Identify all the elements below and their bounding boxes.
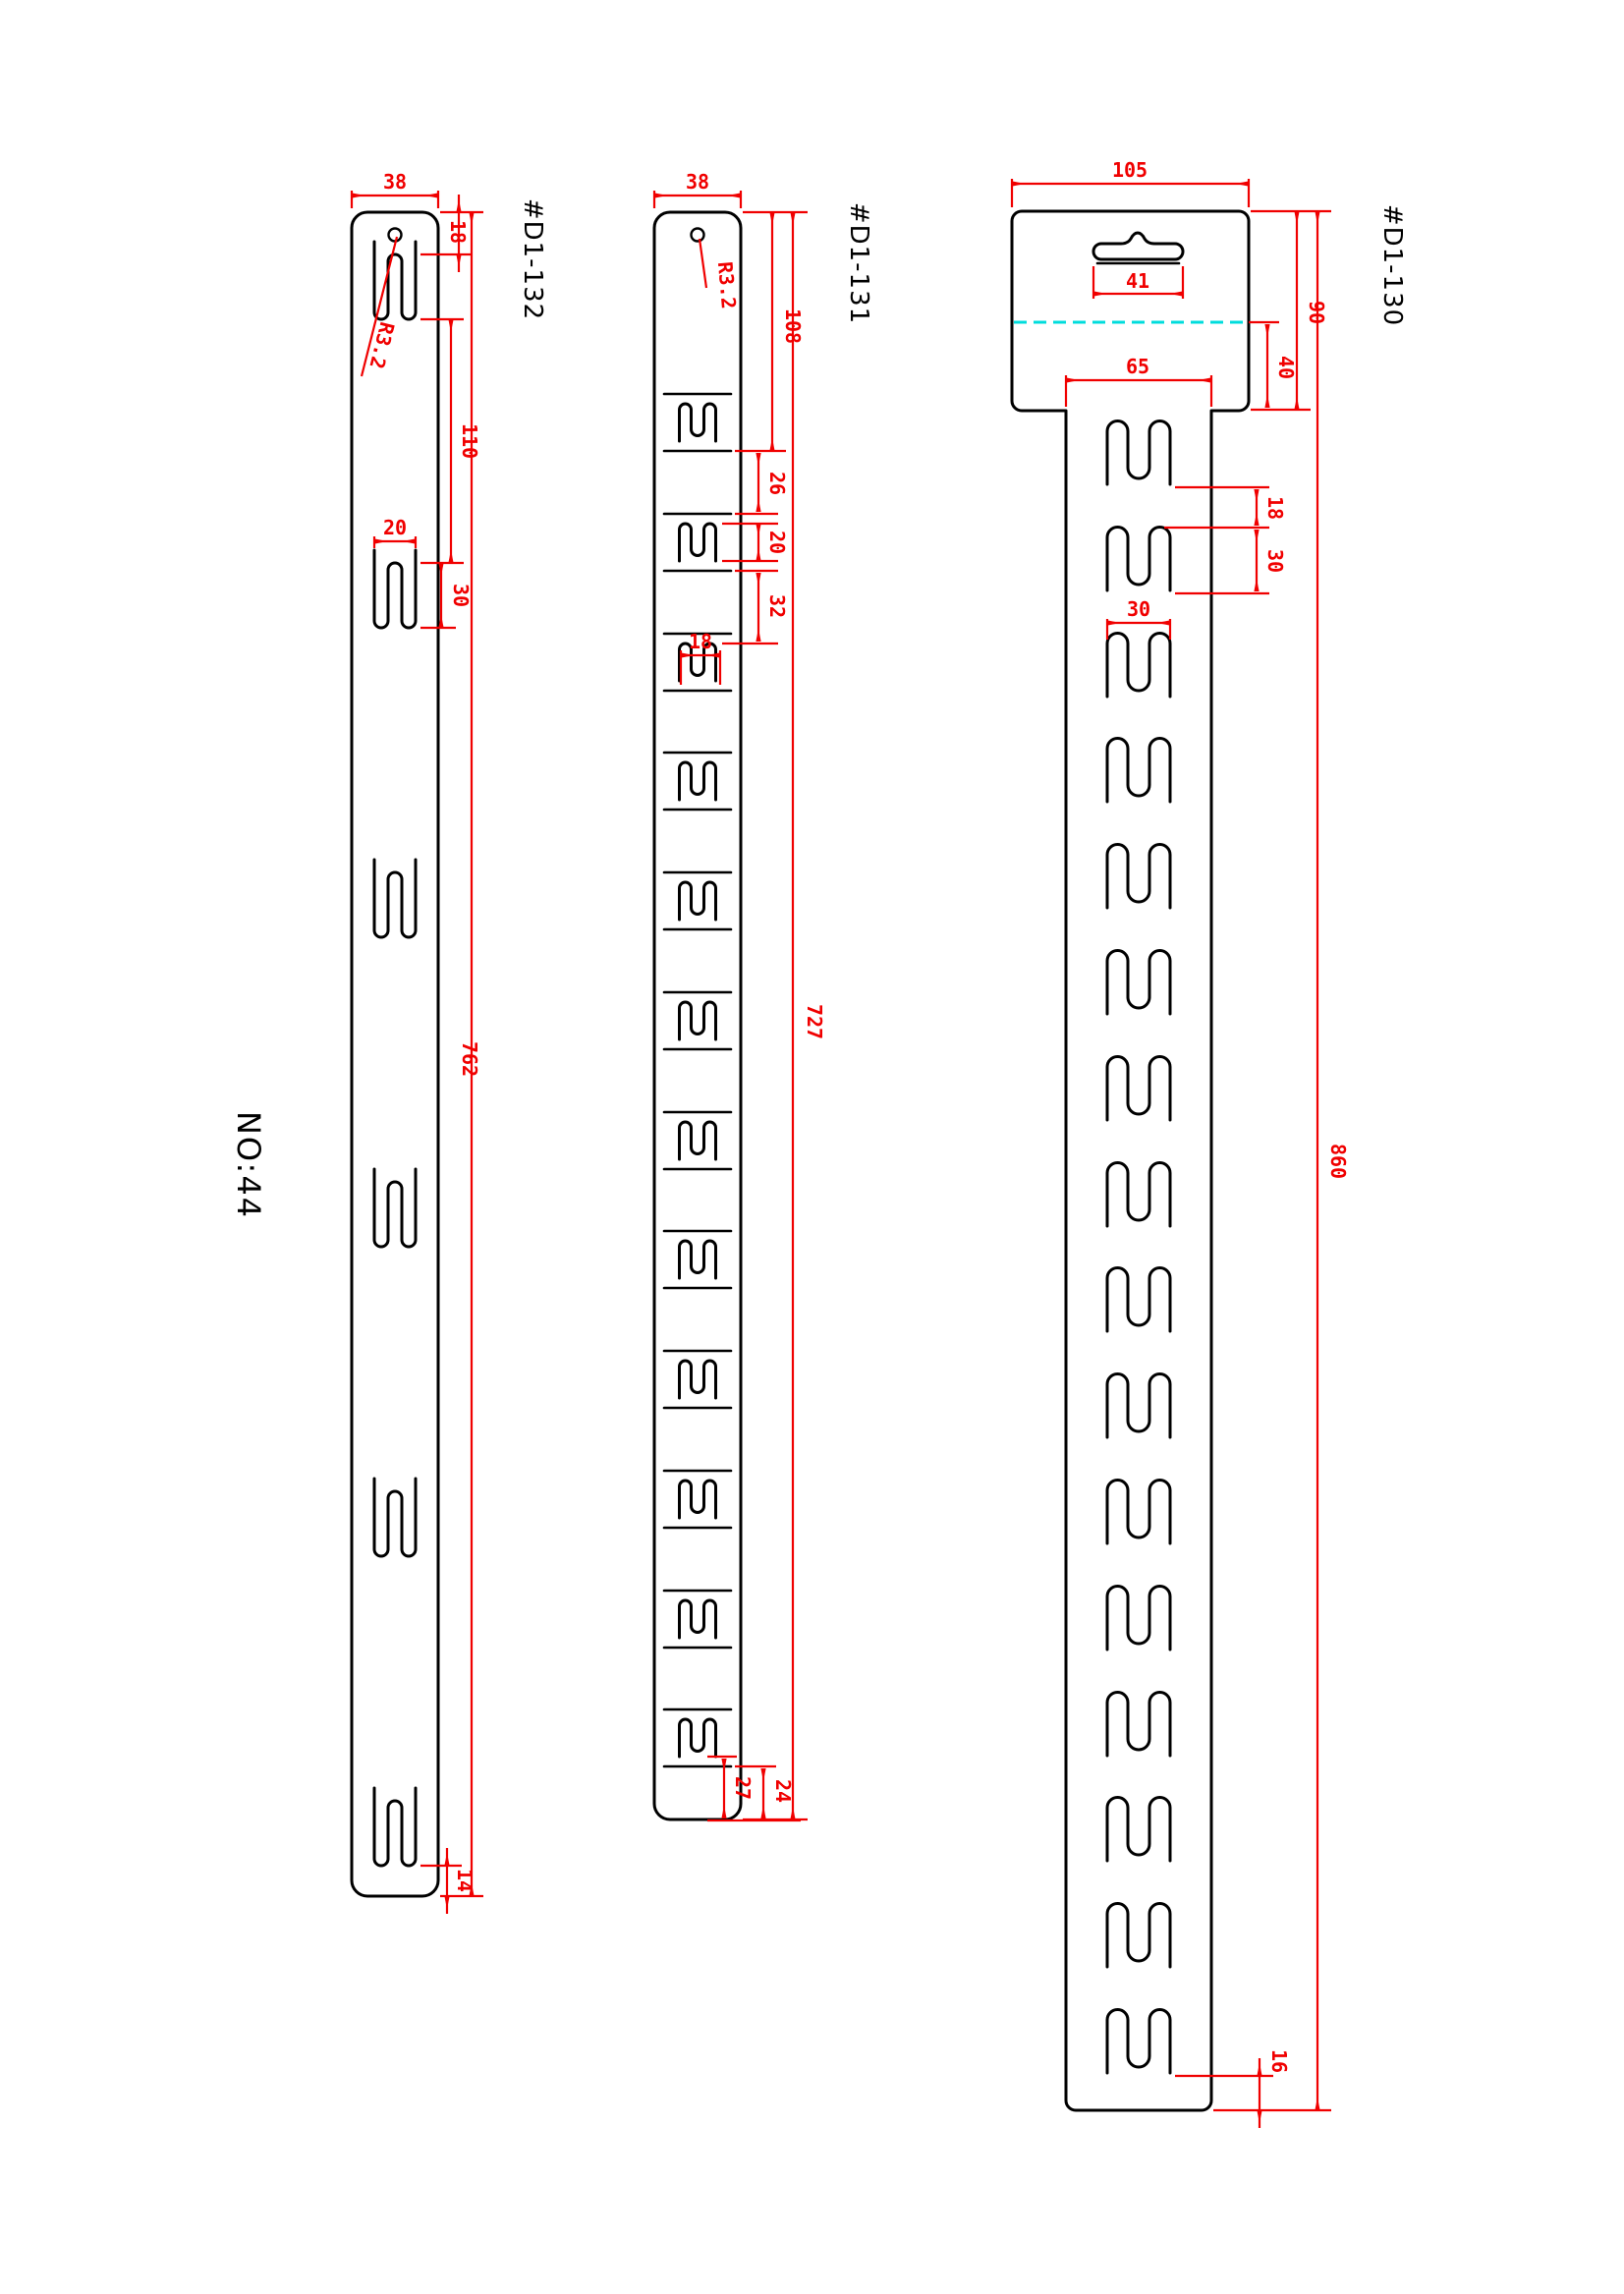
dim-text: 20 (765, 531, 789, 554)
dim-text: 38 (686, 170, 709, 194)
dim-text: 38 (383, 170, 407, 194)
dim-text: 18 (446, 220, 470, 244)
dim-text: 30 (1127, 597, 1150, 621)
part-label-d131: #D1-131 (844, 202, 873, 324)
dim-text: R3.2 (713, 260, 741, 309)
dim-text: 727 (803, 1004, 826, 1039)
drawing-sheet: 38 18 R3.2 110 20 (0, 0, 1624, 2294)
dim-text: 30 (449, 584, 473, 607)
dim-text: 20 (383, 516, 407, 539)
part-label-d132: #D1-132 (518, 198, 547, 320)
sheet-note-number: NO:44 (230, 1111, 267, 1219)
dim-text: 16 (1267, 2049, 1291, 2073)
dim-text: 24 (771, 1779, 795, 1803)
cad-canvas: 38 18 R3.2 110 20 (0, 0, 1624, 2294)
dim-text: 14 (453, 1869, 476, 1892)
dim-text: 32 (765, 594, 789, 618)
dim-text: 110 (458, 423, 481, 459)
dim-text: 40 (1274, 356, 1298, 379)
dim-text: 26 (765, 472, 789, 495)
dim-text: 105 (1112, 158, 1148, 182)
dim-text: 762 (458, 1041, 481, 1077)
dim-text: 65 (1126, 355, 1149, 378)
dim-text: 18 (689, 630, 712, 653)
dim-text: 18 (1263, 496, 1287, 520)
dim-text: 41 (1126, 269, 1149, 293)
dim-text: 30 (1263, 549, 1287, 573)
part-label-d130: #D1-130 (1377, 204, 1407, 326)
dim-text: 860 (1326, 1144, 1350, 1179)
dim-text: 27 (731, 1776, 755, 1800)
